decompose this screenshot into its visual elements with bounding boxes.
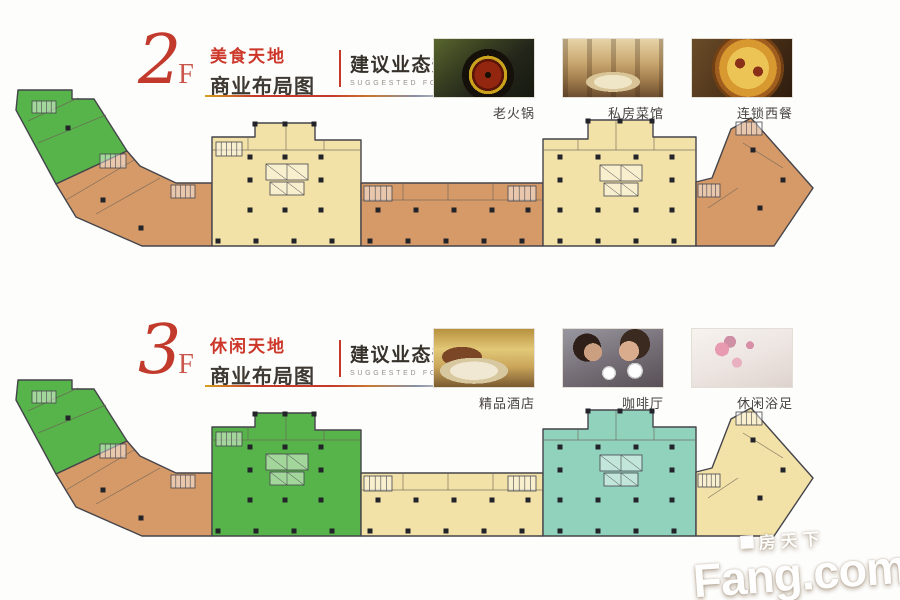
column-marker (672, 529, 677, 534)
column-marker (368, 239, 373, 244)
floor-suffix: F (178, 352, 194, 378)
stair-core (100, 154, 126, 168)
elevator-core (270, 472, 304, 485)
elevator-core (270, 182, 304, 195)
column-marker (586, 409, 591, 414)
floor-plan-2f (8, 88, 833, 253)
column-marker (758, 496, 763, 501)
column-marker (248, 445, 253, 450)
column-marker (634, 239, 639, 244)
watermark-en-text: Fang.com (691, 543, 900, 600)
floor-suffix: F (178, 62, 194, 88)
column-marker (670, 208, 675, 213)
column-marker (319, 178, 324, 183)
column-marker (292, 529, 297, 534)
elevator-core (266, 164, 308, 180)
column-marker (634, 529, 639, 534)
stair-core (698, 184, 720, 197)
column-marker (139, 516, 144, 521)
stair-core (364, 186, 392, 201)
column-marker (414, 208, 419, 213)
column-marker (618, 409, 623, 414)
column-marker (66, 126, 71, 131)
column-marker (376, 208, 381, 213)
column-marker (596, 208, 601, 213)
column-marker (758, 206, 763, 211)
column-marker (248, 208, 253, 213)
column-marker (248, 498, 253, 503)
column-marker (670, 155, 675, 160)
column-marker (319, 468, 324, 473)
column-marker (330, 529, 335, 534)
column-marker (558, 208, 563, 213)
stair-core (216, 432, 242, 446)
stair-core (364, 476, 392, 491)
column-marker (482, 529, 487, 534)
column-marker (634, 445, 639, 450)
column-marker (406, 239, 411, 244)
column-marker (253, 122, 258, 127)
stair-core (698, 474, 720, 487)
column-marker (558, 155, 563, 160)
column-marker (283, 122, 288, 127)
column-marker (216, 529, 221, 534)
column-marker (670, 178, 675, 183)
floor-number: 2 (138, 34, 181, 88)
column-marker (283, 208, 288, 213)
column-marker (482, 239, 487, 244)
fang-logo-square-icon (740, 535, 754, 549)
fang-watermark: 房天下 Fang.com (690, 519, 900, 600)
elevator-core (600, 455, 642, 471)
column-marker (670, 468, 675, 473)
column-marker (596, 239, 601, 244)
column-marker (319, 445, 324, 450)
floor-number-group: 2 F (138, 34, 204, 88)
column-marker (283, 412, 288, 417)
theme-title: 美食天地 (210, 42, 315, 67)
column-marker (319, 498, 324, 503)
column-marker (618, 119, 623, 124)
column-marker (283, 155, 288, 160)
column-marker (406, 529, 411, 534)
column-marker (526, 498, 531, 503)
column-marker (254, 529, 259, 534)
stair-core (736, 122, 762, 135)
column-marker (526, 208, 531, 213)
theme-title: 休闲天地 (210, 332, 315, 357)
stair-core (32, 101, 56, 113)
column-marker (596, 529, 601, 534)
column-marker (634, 155, 639, 160)
column-marker (66, 416, 71, 421)
zone-right-arm (696, 118, 813, 246)
column-marker (558, 529, 563, 534)
column-marker (248, 155, 253, 160)
stair-core (508, 186, 536, 201)
stair-core (100, 444, 126, 458)
elevator-core (604, 473, 638, 486)
stair-core (736, 412, 762, 425)
column-marker (216, 239, 221, 244)
column-marker (444, 239, 449, 244)
column-marker (634, 208, 639, 213)
stair-core (32, 391, 56, 403)
column-marker (520, 239, 525, 244)
stair-core (508, 476, 536, 491)
column-marker (670, 445, 675, 450)
column-marker (319, 208, 324, 213)
column-marker (558, 445, 563, 450)
stair-core (171, 475, 195, 488)
column-marker (319, 155, 324, 160)
column-marker (312, 122, 317, 127)
column-marker (248, 178, 253, 183)
floor-number: 3 (138, 324, 181, 378)
stair-core (171, 185, 195, 198)
column-marker (248, 468, 253, 473)
column-marker (101, 198, 106, 203)
column-marker (444, 529, 449, 534)
elevator-core (604, 183, 638, 196)
column-marker (586, 119, 591, 124)
column-marker (781, 468, 786, 473)
column-marker (490, 498, 495, 503)
column-marker (452, 498, 457, 503)
zone-right-arm (696, 408, 813, 536)
floor-number-group: 3 F (138, 324, 204, 378)
column-marker (558, 468, 563, 473)
column-marker (312, 412, 317, 417)
column-marker (283, 445, 288, 450)
column-marker (490, 208, 495, 213)
column-marker (596, 155, 601, 160)
column-marker (558, 239, 563, 244)
column-marker (292, 239, 297, 244)
column-marker (330, 239, 335, 244)
column-marker (254, 239, 259, 244)
column-marker (634, 498, 639, 503)
column-marker (283, 498, 288, 503)
column-marker (452, 208, 457, 213)
column-marker (751, 438, 756, 443)
stair-core (216, 142, 242, 156)
column-marker (670, 498, 675, 503)
floor-plan-3f (8, 378, 833, 543)
page: 2 F 美食天地 商业布局图 建议业态规划图 SUGGESTED FORMAT … (0, 0, 900, 600)
column-marker (596, 445, 601, 450)
column-marker (376, 498, 381, 503)
column-marker (751, 148, 756, 153)
column-marker (596, 498, 601, 503)
column-marker (139, 226, 144, 231)
column-marker (414, 498, 419, 503)
column-marker (781, 178, 786, 183)
column-marker (558, 178, 563, 183)
column-marker (650, 409, 655, 414)
column-marker (672, 239, 677, 244)
column-marker (558, 498, 563, 503)
column-marker (650, 119, 655, 124)
column-marker (520, 529, 525, 534)
column-marker (368, 529, 373, 534)
elevator-core (600, 165, 642, 181)
column-marker (101, 488, 106, 493)
elevator-core (266, 454, 308, 470)
column-marker (253, 412, 258, 417)
